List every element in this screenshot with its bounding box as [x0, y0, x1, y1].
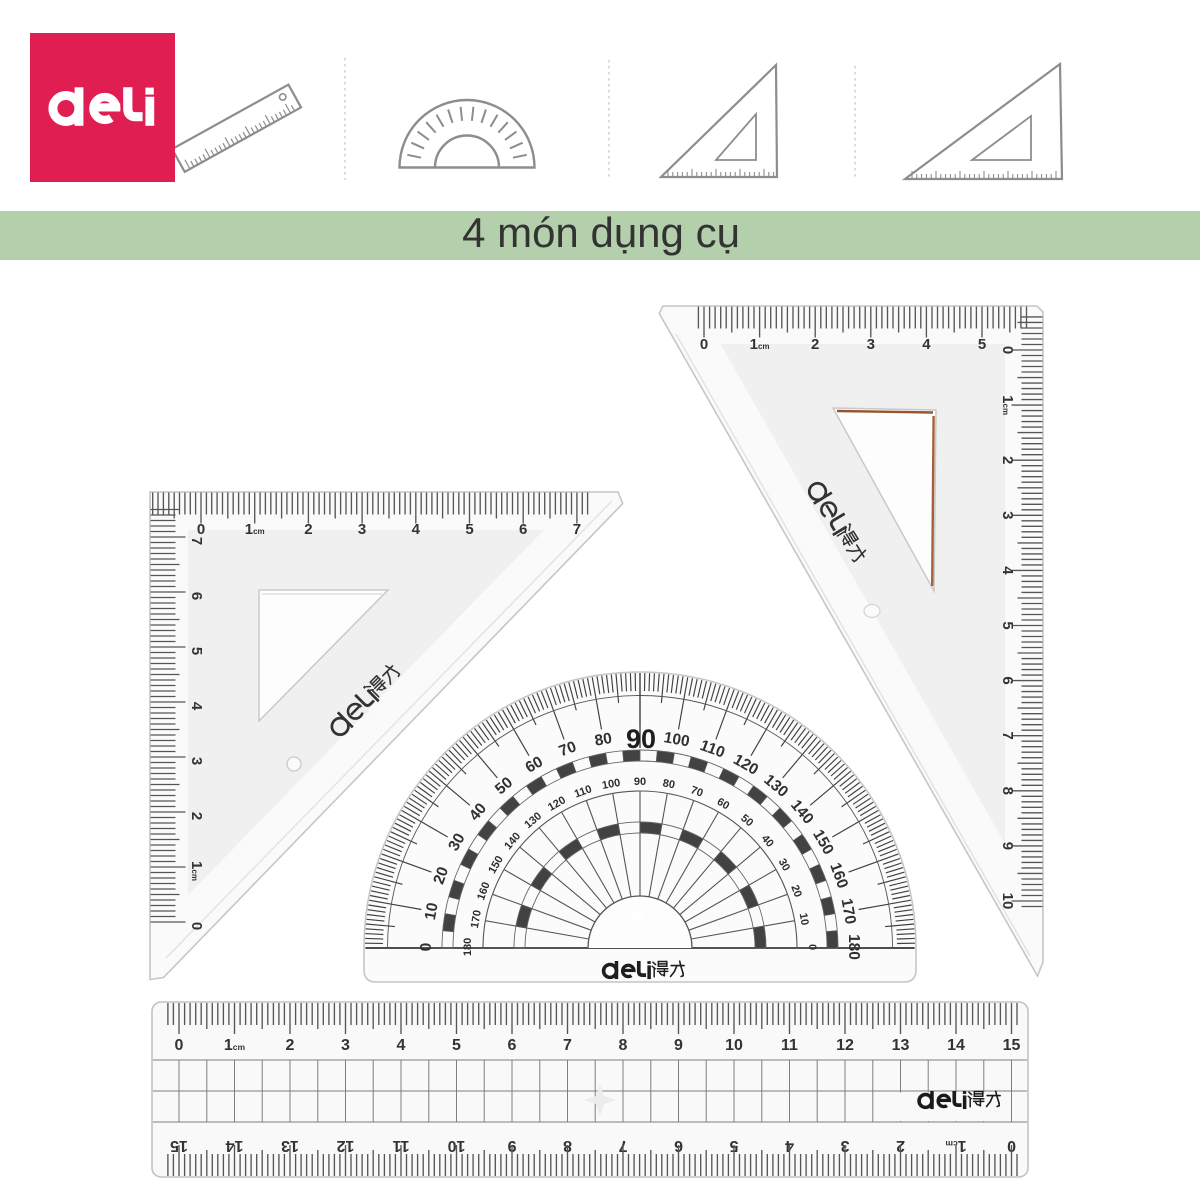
- svg-text:10: 10: [725, 1037, 743, 1054]
- svg-text:5: 5: [978, 336, 986, 353]
- svg-text:13: 13: [892, 1037, 910, 1054]
- svg-text:0: 0: [418, 943, 435, 952]
- svg-text:12: 12: [836, 1037, 854, 1054]
- svg-text:5: 5: [465, 521, 473, 538]
- svg-text:180: 180: [462, 938, 474, 956]
- svg-text:2: 2: [286, 1037, 295, 1054]
- svg-text:9: 9: [999, 842, 1016, 850]
- svg-text:4: 4: [922, 336, 931, 353]
- svg-text:0: 0: [999, 346, 1016, 354]
- svg-text:14: 14: [947, 1037, 965, 1054]
- svg-text:11: 11: [781, 1037, 798, 1054]
- svg-text:0: 0: [197, 521, 205, 538]
- svg-text:2: 2: [811, 336, 819, 353]
- svg-text:0: 0: [806, 944, 818, 950]
- svg-text:7: 7: [573, 521, 581, 538]
- svg-text:5: 5: [999, 621, 1016, 629]
- svg-text:0: 0: [700, 336, 708, 353]
- svg-text:4: 4: [412, 521, 421, 538]
- svg-text:80: 80: [593, 730, 613, 750]
- svg-text:10: 10: [422, 901, 442, 921]
- svg-text:3: 3: [341, 1037, 350, 1054]
- svg-text:90: 90: [626, 724, 656, 754]
- svg-text:9: 9: [674, 1037, 683, 1054]
- svg-text:90: 90: [634, 776, 646, 788]
- svg-text:3: 3: [358, 521, 366, 538]
- svg-text:4 món dụng cụ: 4 món dụng cụ: [462, 209, 740, 256]
- svg-text:6: 6: [508, 1037, 517, 1054]
- svg-text:3: 3: [999, 511, 1016, 519]
- svg-text:8: 8: [999, 787, 1016, 795]
- svg-text:3: 3: [188, 757, 205, 765]
- svg-text:15: 15: [1003, 1037, 1021, 1054]
- svg-text:4: 4: [999, 566, 1016, 575]
- svg-text:2: 2: [999, 456, 1016, 464]
- svg-text:10: 10: [999, 893, 1016, 910]
- svg-text:7: 7: [563, 1037, 572, 1054]
- svg-text:7: 7: [999, 732, 1016, 740]
- svg-text:3: 3: [867, 336, 875, 353]
- svg-text:6: 6: [188, 592, 205, 600]
- svg-text:180: 180: [845, 934, 862, 960]
- svg-text:8: 8: [619, 1037, 628, 1054]
- svg-text:2: 2: [304, 521, 312, 538]
- svg-text:80: 80: [662, 777, 676, 791]
- svg-text:7: 7: [188, 537, 205, 545]
- svg-text:6: 6: [999, 676, 1016, 684]
- svg-text:2: 2: [188, 812, 205, 820]
- svg-text:10: 10: [797, 912, 811, 926]
- svg-text:6: 6: [519, 521, 527, 538]
- svg-text:5: 5: [452, 1037, 461, 1054]
- svg-text:5: 5: [188, 647, 205, 655]
- svg-text:4: 4: [188, 702, 205, 711]
- svg-text:0: 0: [175, 1037, 184, 1054]
- svg-text:0: 0: [188, 922, 205, 930]
- svg-text:4: 4: [397, 1037, 406, 1054]
